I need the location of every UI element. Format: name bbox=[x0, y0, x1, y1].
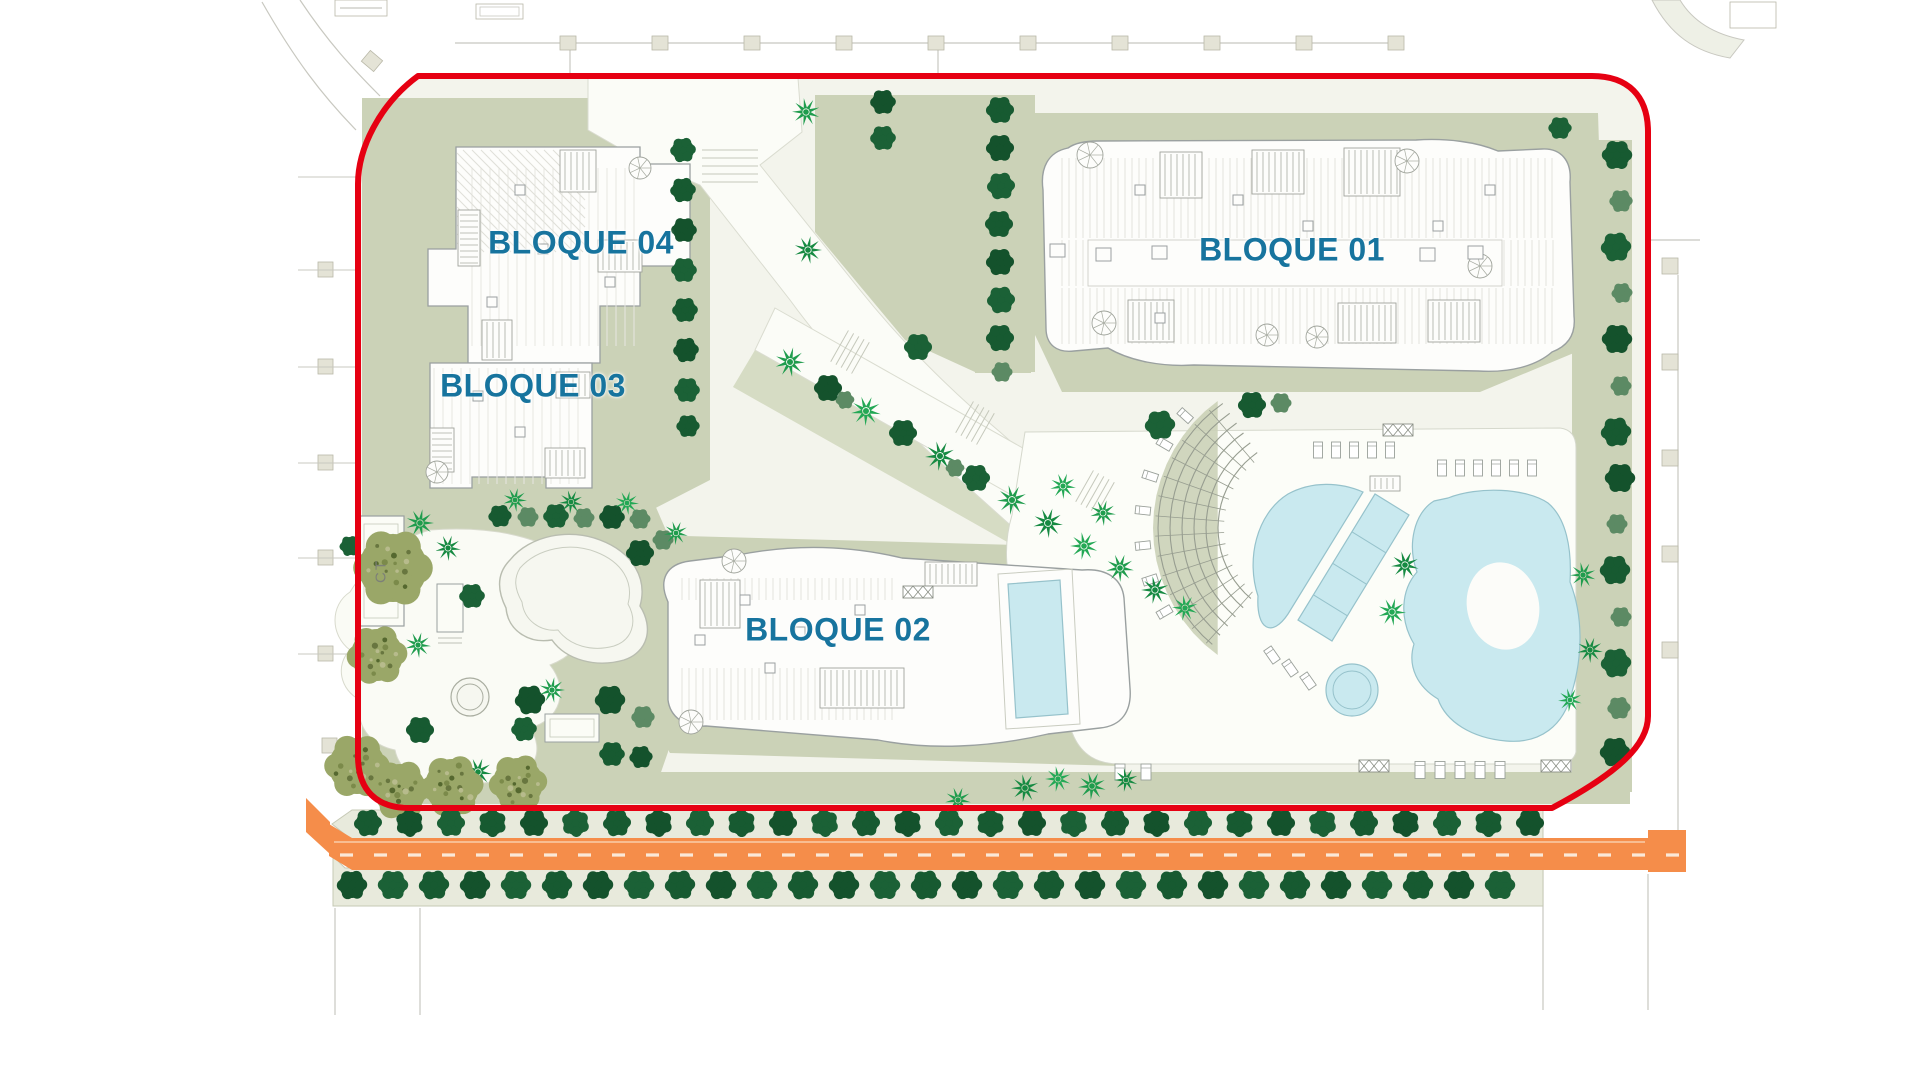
sun-lounger-icon bbox=[1510, 460, 1519, 476]
stair-icon bbox=[482, 320, 512, 360]
site-plan: BLOQUE 04 BLOQUE 03 BLOQUE 01 BLOQUE 02 … bbox=[0, 0, 1920, 1080]
stair-icon bbox=[820, 668, 904, 708]
pergola bbox=[545, 714, 599, 742]
label-bloque-02: BLOQUE 02 bbox=[745, 612, 931, 649]
stair-icon bbox=[1370, 476, 1400, 491]
stair-icon bbox=[1344, 148, 1400, 196]
trellis-icon bbox=[1383, 424, 1413, 436]
roof-vent-icon bbox=[1135, 185, 1145, 195]
stair-icon bbox=[700, 580, 740, 628]
spiral-stair-icon bbox=[1306, 326, 1328, 348]
sun-lounger-icon bbox=[1475, 762, 1485, 779]
roof-vent-icon bbox=[765, 663, 775, 673]
trellis-icon bbox=[1541, 760, 1571, 772]
roof-vent-icon bbox=[1155, 313, 1165, 323]
sun-lounger-icon bbox=[1492, 460, 1501, 476]
stair-icon bbox=[458, 210, 480, 266]
stair-icon bbox=[1428, 300, 1480, 342]
roof-vent-icon bbox=[695, 635, 705, 645]
spiral-stair-icon bbox=[1395, 149, 1419, 173]
sun-lounger-icon bbox=[1415, 762, 1425, 779]
stair-icon bbox=[1160, 152, 1202, 198]
roof-vent-icon bbox=[1303, 221, 1313, 231]
spiral-stair-icon bbox=[426, 461, 448, 483]
sun-lounger-icon bbox=[1495, 762, 1505, 779]
roof-vent-icon bbox=[515, 185, 525, 195]
trellis-icon bbox=[903, 586, 933, 598]
stair-icon bbox=[1252, 150, 1304, 194]
sun-lounger-icon bbox=[1435, 762, 1445, 779]
label-bloque-03: BLOQUE 03 bbox=[440, 368, 626, 405]
trellis-icon bbox=[1359, 760, 1389, 772]
stair-icon bbox=[545, 448, 585, 478]
site-plan-drawing bbox=[0, 0, 1920, 1080]
sun-lounger-icon bbox=[1528, 460, 1537, 476]
sun-lounger-icon bbox=[1456, 460, 1465, 476]
label-bloque-01: BLOQUE 01 bbox=[1199, 232, 1385, 269]
roof-vent-icon bbox=[740, 595, 750, 605]
sun-lounger-icon bbox=[1474, 460, 1483, 476]
sun-lounger-icon bbox=[1368, 442, 1377, 458]
jacuzzi-pool bbox=[1326, 664, 1378, 716]
roof-vent-icon bbox=[1233, 195, 1243, 205]
street-tab bbox=[1730, 2, 1776, 28]
sun-lounger-icon bbox=[1438, 460, 1447, 476]
roof-vent-icon bbox=[515, 427, 525, 437]
label-bloque-04: BLOQUE 04 bbox=[488, 225, 674, 262]
sun-lounger-icon bbox=[1135, 541, 1151, 551]
roof-vent-icon bbox=[1433, 221, 1443, 231]
sun-lounger-icon bbox=[1135, 506, 1151, 516]
spiral-stair-icon bbox=[722, 549, 746, 573]
spiral-stair-icon bbox=[1092, 311, 1116, 335]
label-ct: CT bbox=[373, 559, 390, 583]
sun-lounger-icon bbox=[1455, 762, 1465, 779]
spiral-stair-icon bbox=[629, 157, 651, 179]
stair-icon bbox=[925, 562, 977, 586]
roof-vent-icon bbox=[487, 297, 497, 307]
sun-lounger-icon bbox=[1332, 442, 1341, 458]
roof-vent-icon bbox=[605, 277, 615, 287]
garden-shed bbox=[437, 584, 463, 632]
spiral-stair-icon bbox=[1077, 142, 1103, 168]
sun-lounger-icon bbox=[1314, 442, 1323, 458]
spiral-stair-icon bbox=[1256, 324, 1278, 346]
rooftop-pool bbox=[1008, 580, 1068, 718]
sun-lounger-icon bbox=[1141, 764, 1151, 780]
sun-lounger-icon bbox=[1350, 442, 1359, 458]
sun-lounger-icon bbox=[1386, 442, 1395, 458]
roof-vent-icon bbox=[1485, 185, 1495, 195]
stair-icon bbox=[560, 150, 596, 192]
spiral-stair-icon bbox=[679, 710, 703, 734]
